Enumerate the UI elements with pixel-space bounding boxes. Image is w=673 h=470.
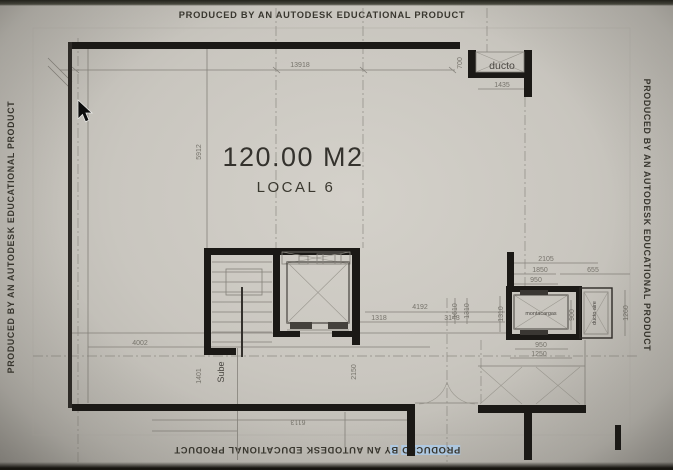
elevator [287,254,349,330]
stairs-direction-label: Sube [216,361,226,382]
dim-lower-mid-a: 1318 [371,315,387,322]
local-label: LOCAL 6 [257,179,336,196]
walls [68,42,621,460]
screen-top-edge [0,0,673,6]
dim-ducto-aire-v: 1260 [623,305,630,321]
dim-shaft-v1: 1610 [452,303,459,319]
dim-ducto-width: 1435 [494,82,510,89]
ducto-label: ducto [489,60,515,72]
dim-mc-cab-v: 900 [569,309,576,321]
dim-left-height: 5912 [196,144,203,160]
dim-elev-right-v: 2150 [351,364,358,380]
dim-mc-bottom-b: 1250 [531,351,547,358]
dim-shaft-v2: 1310 [464,303,471,319]
mouse-cursor-icon [78,100,92,122]
screen-bottom-edge [0,462,673,470]
dim-ducto-height: 700 [457,57,464,69]
dim-mc-top-c: 950 [530,277,542,284]
area-label: 120.00 M2 [222,142,363,172]
floor-plan-canvas: 120.00 M2 LOCAL 6 ducto montacargas duct… [0,0,673,470]
sheet-border [33,28,630,435]
dim-lower-mid-total: 4192 [412,304,428,311]
dim-mc-top-a: 1850 [532,267,548,274]
screen-photo: PRODUCED BY AN AUTODESK EDUCATIONAL PROD… [0,0,673,470]
dim-mc-top-b: 655 [587,267,599,274]
staircase [212,262,272,357]
dim-mc-bottom-a: 950 [535,342,547,349]
door-swings [419,367,580,404]
dim-mc-left-v: 1310 [498,306,505,322]
dim-bottom-width: 6113 [290,418,305,425]
dim-mc-top-total: 2105 [538,256,554,263]
ducto-aire-label: ducto aire [592,301,598,325]
grid-lines [33,8,640,462]
dim-top-width: 13918 [290,62,310,69]
montacargas-label: montacargas [525,311,556,317]
dim-lower-left-width: 4002 [132,340,148,347]
dim-stair-left-v: 1401 [196,368,203,384]
